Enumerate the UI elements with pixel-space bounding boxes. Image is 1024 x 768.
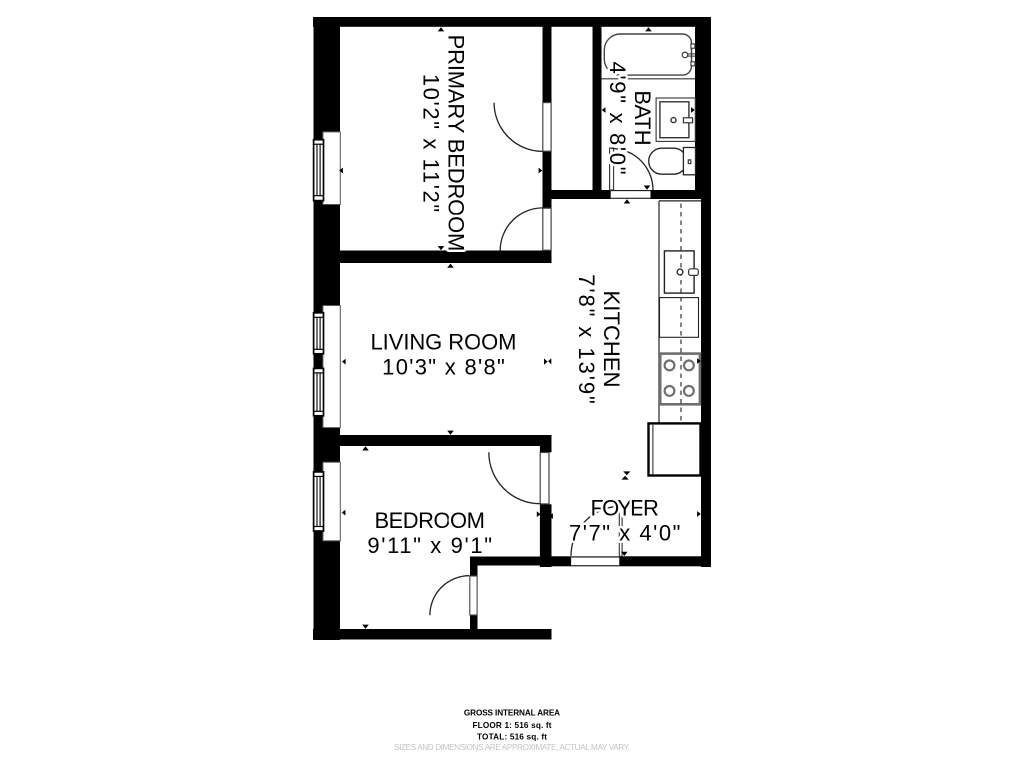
svg-text:7'8" x 13'9": 7'8" x 13'9" <box>574 274 599 404</box>
svg-text:GROSS INTERNAL AREA: GROSS INTERNAL AREA <box>464 709 560 718</box>
svg-text:9'11" x 9'1": 9'11" x 9'1" <box>367 533 492 558</box>
svg-text:TOTAL: 516 sq. ft: TOTAL: 516 sq. ft <box>477 732 547 741</box>
svg-text:PRIMARY BEDROOM: PRIMARY BEDROOM <box>444 35 469 252</box>
svg-text:SIZES AND DIMENSIONS ARE APPRO: SIZES AND DIMENSIONS ARE APPROXIMATE, AC… <box>394 743 630 752</box>
svg-text:4'9" x 8'0": 4'9" x 8'0" <box>605 62 630 175</box>
svg-text:BATH: BATH <box>630 90 655 145</box>
svg-text:BEDROOM: BEDROOM <box>374 508 485 533</box>
svg-text:7'7" x 4'0": 7'7" x 4'0" <box>569 521 680 546</box>
svg-text:LIVING ROOM: LIVING ROOM <box>371 329 517 354</box>
svg-text:FOYER: FOYER <box>591 496 659 521</box>
svg-text:10'2" x 11'2": 10'2" x 11'2" <box>419 74 444 212</box>
svg-text:KITCHEN: KITCHEN <box>599 291 624 388</box>
svg-text:FLOOR 1: 516 sq. ft: FLOOR 1: 516 sq. ft <box>473 721 552 730</box>
